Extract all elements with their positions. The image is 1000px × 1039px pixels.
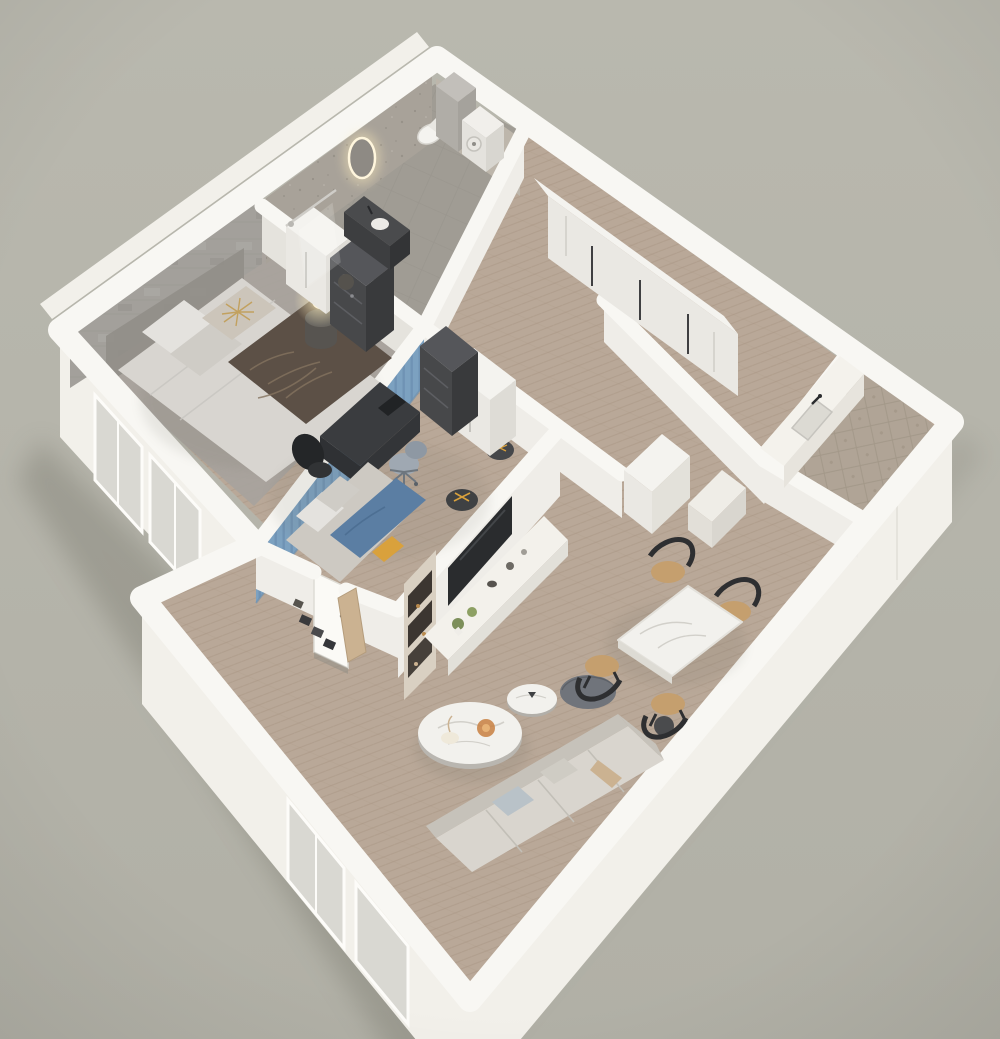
apartment-3d-floorplan [0,0,1000,1039]
vignette [0,0,1000,1039]
floorplan-svg [0,0,1000,1039]
